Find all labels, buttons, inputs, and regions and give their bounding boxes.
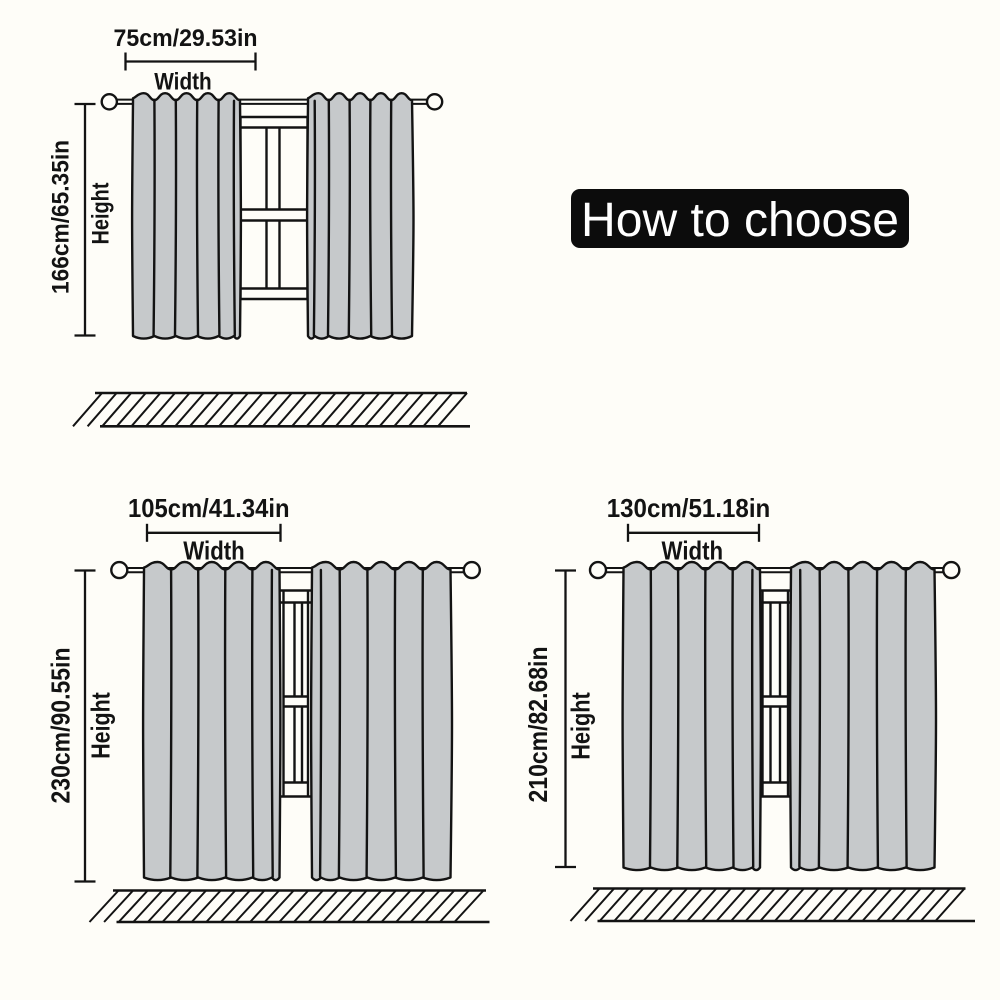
svg-text:Width: Width [183,536,245,566]
svg-text:Height: Height [85,692,115,759]
svg-text:166cm/65.35in: 166cm/65.35in [48,140,75,294]
svg-text:130cm/51.18in: 130cm/51.18in [607,493,771,523]
svg-text:210cm/82.68in: 210cm/82.68in [523,647,553,803]
svg-text:105cm/41.34in: 105cm/41.34in [128,493,290,523]
svg-text:Width: Width [154,68,212,95]
svg-text:How to choose: How to choose [581,194,899,247]
svg-text:75cm/29.53in: 75cm/29.53in [114,25,258,52]
svg-text:Height: Height [88,183,115,245]
svg-text:Height: Height [566,692,596,760]
svg-text:230cm/90.55in: 230cm/90.55in [46,648,76,804]
